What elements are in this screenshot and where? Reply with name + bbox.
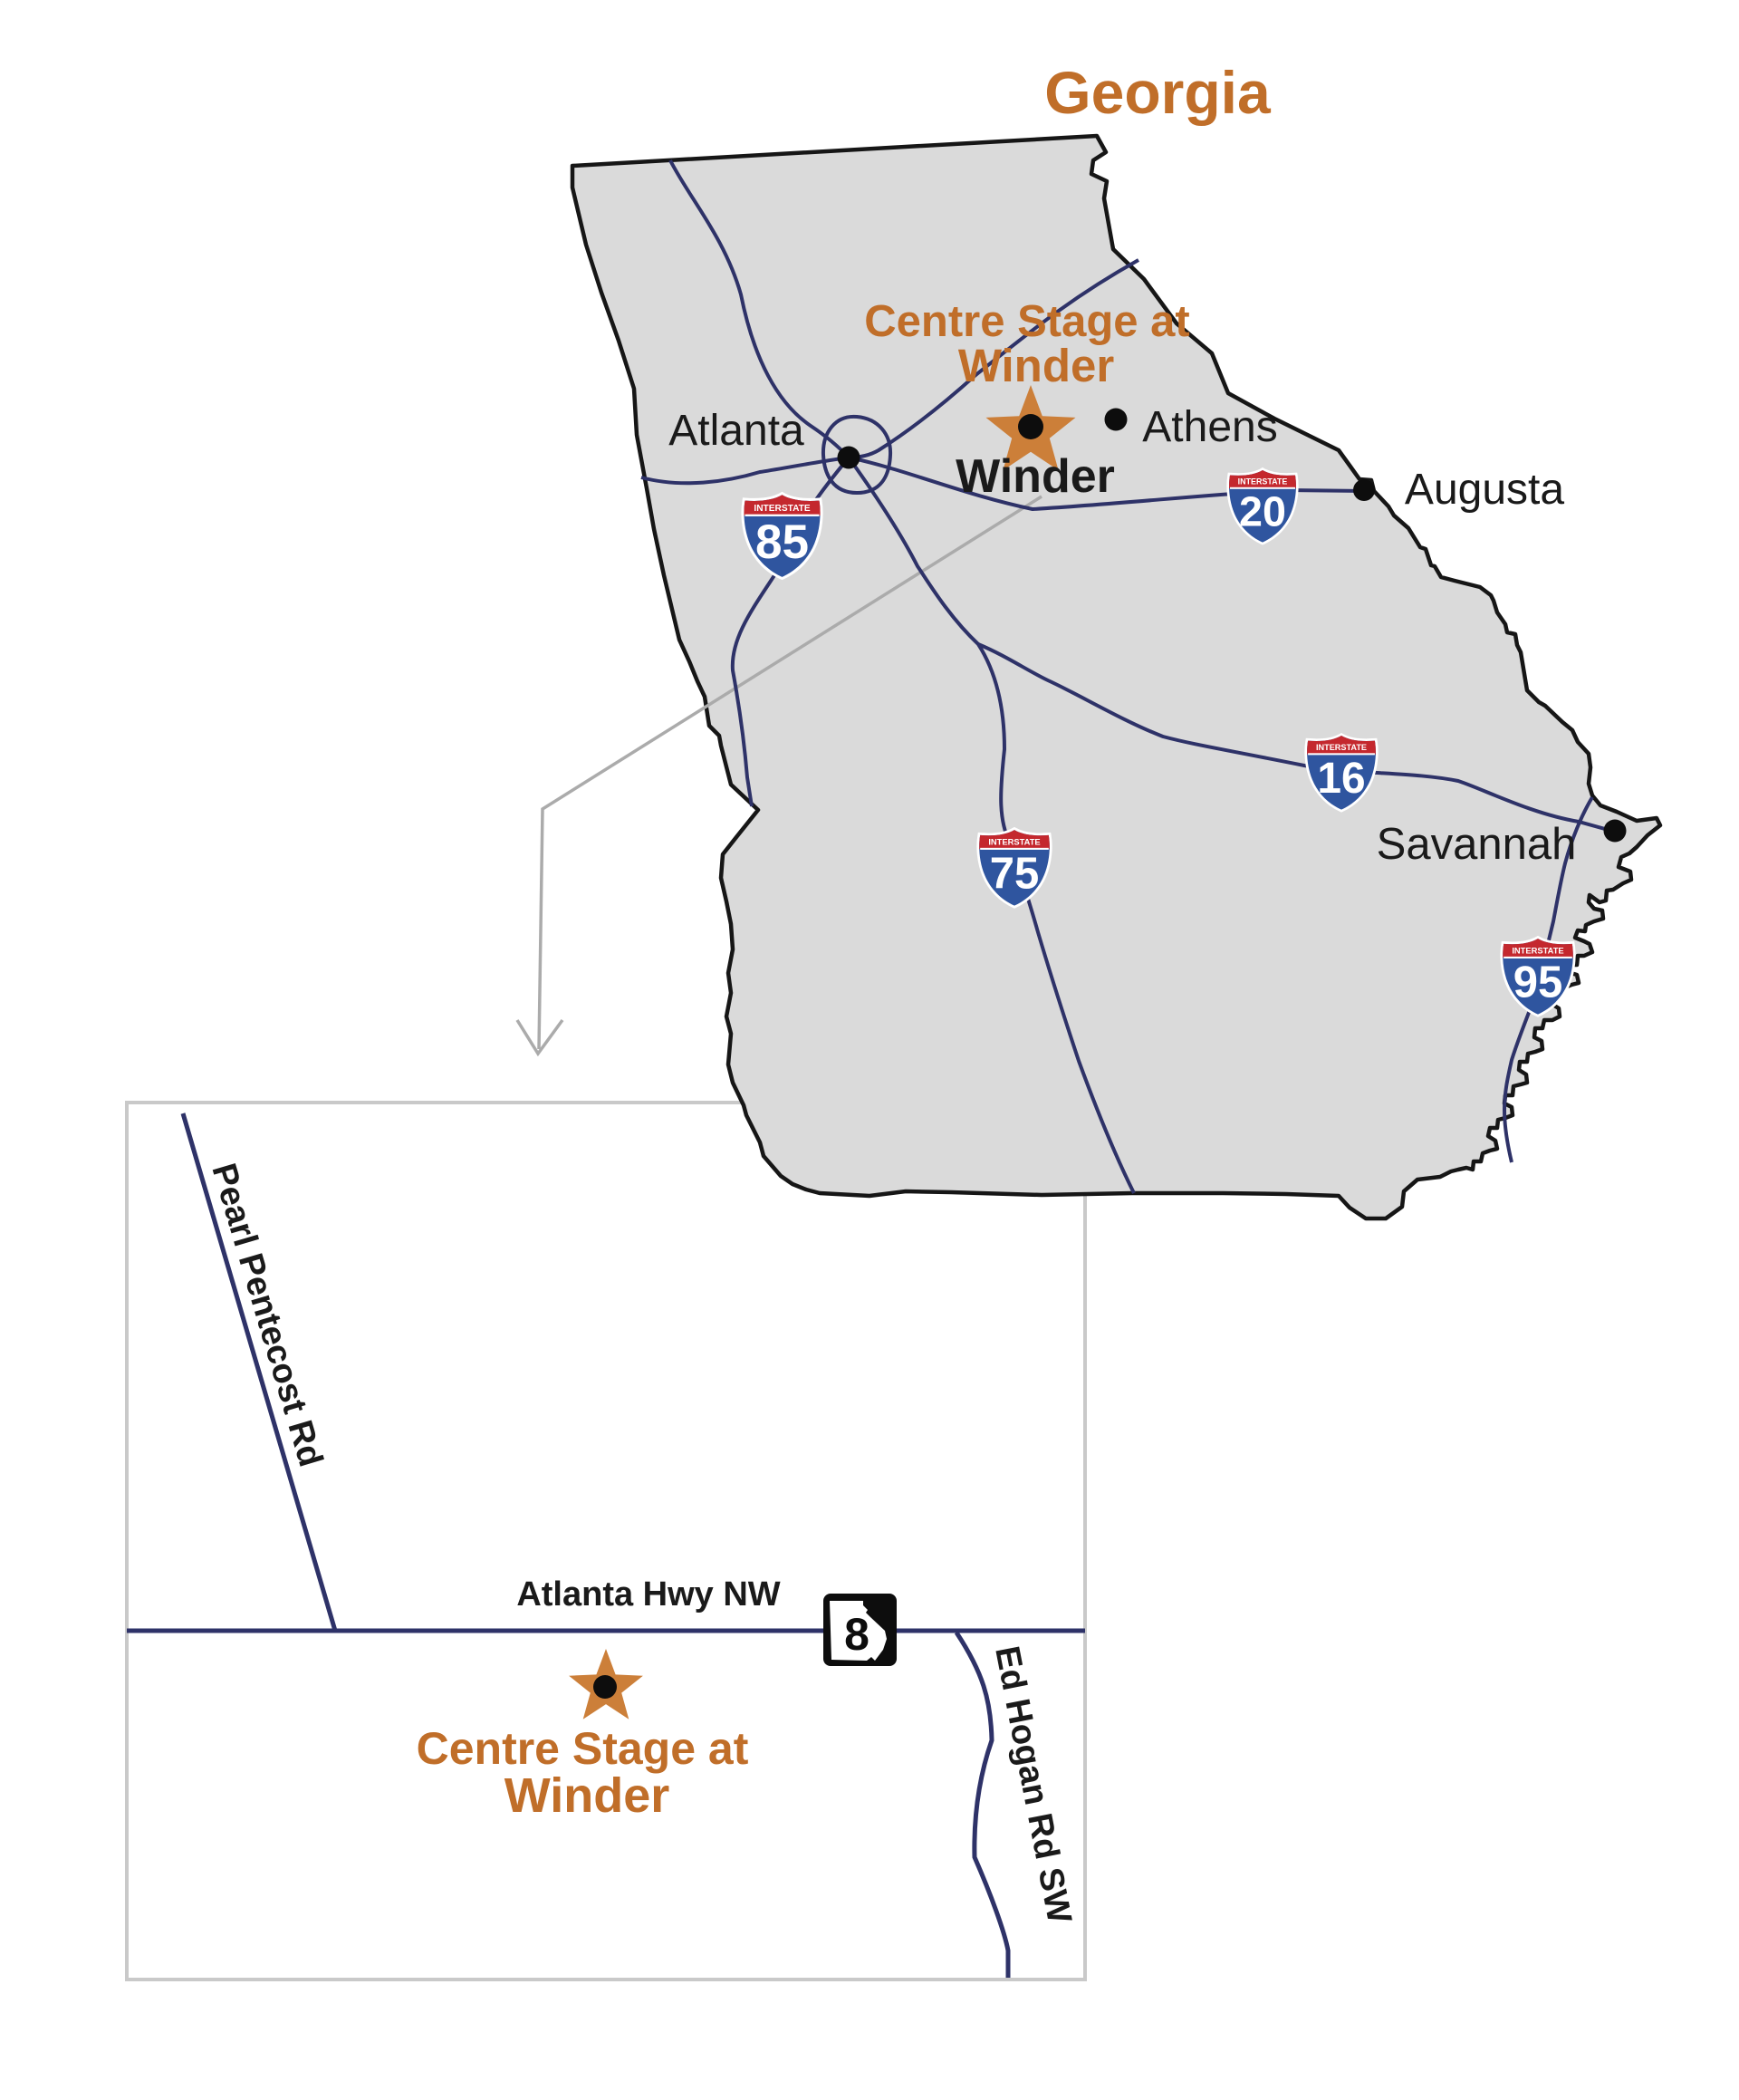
svg-text:Atlanta Hwy NW: Atlanta Hwy NW bbox=[516, 1575, 780, 1614]
svg-text:95: 95 bbox=[1513, 958, 1563, 1007]
svg-text:Centre Stage at: Centre Stage at bbox=[864, 297, 1189, 346]
svg-text:Georgia: Georgia bbox=[1044, 59, 1272, 126]
svg-text:INTERSTATE: INTERSTATE bbox=[1238, 477, 1288, 486]
svg-text:Winder: Winder bbox=[956, 450, 1115, 503]
svg-text:Atlanta: Atlanta bbox=[668, 407, 804, 455]
svg-text:Winder: Winder bbox=[504, 1768, 670, 1823]
svg-text:INTERSTATE: INTERSTATE bbox=[988, 838, 1040, 847]
svg-text:INTERSTATE: INTERSTATE bbox=[1316, 743, 1367, 752]
svg-text:Athens: Athens bbox=[1142, 403, 1277, 451]
svg-text:Centre Stage at: Centre Stage at bbox=[417, 1723, 749, 1774]
svg-text:20: 20 bbox=[1239, 487, 1286, 535]
svg-text:Winder: Winder bbox=[958, 340, 1115, 391]
svg-text:INTERSTATE: INTERSTATE bbox=[1512, 947, 1563, 956]
svg-text:75: 75 bbox=[990, 850, 1040, 899]
svg-text:8: 8 bbox=[844, 1609, 869, 1660]
svg-text:16: 16 bbox=[1317, 755, 1365, 803]
svg-text:Savannah: Savannah bbox=[1377, 820, 1577, 869]
svg-text:INTERSTATE: INTERSTATE bbox=[754, 504, 810, 514]
svg-text:Augusta: Augusta bbox=[1405, 466, 1564, 514]
svg-text:85: 85 bbox=[755, 515, 809, 569]
